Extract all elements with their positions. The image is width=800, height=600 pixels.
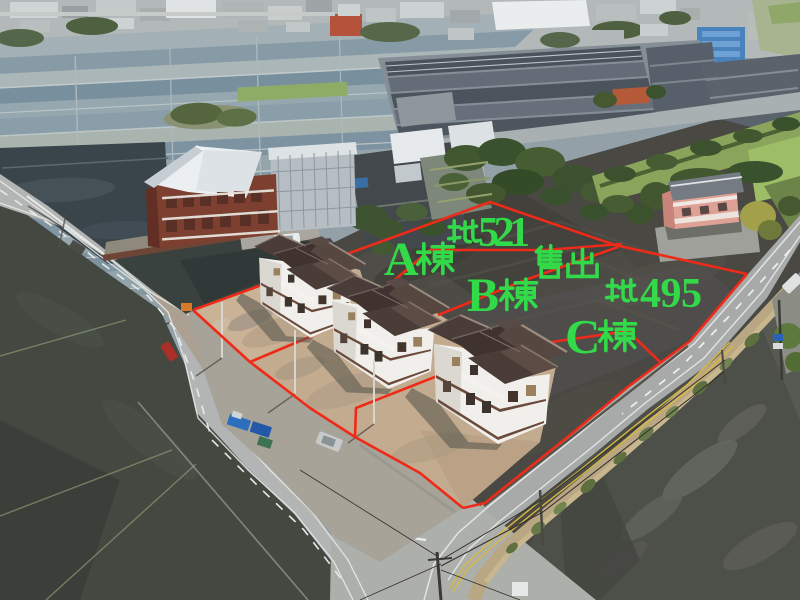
svg-text:C: C <box>565 309 600 364</box>
svg-text:495: 495 <box>640 271 702 317</box>
svg-text:521: 521 <box>478 210 530 256</box>
svg-text:A: A <box>384 233 419 286</box>
svg-text:B: B <box>467 269 499 322</box>
